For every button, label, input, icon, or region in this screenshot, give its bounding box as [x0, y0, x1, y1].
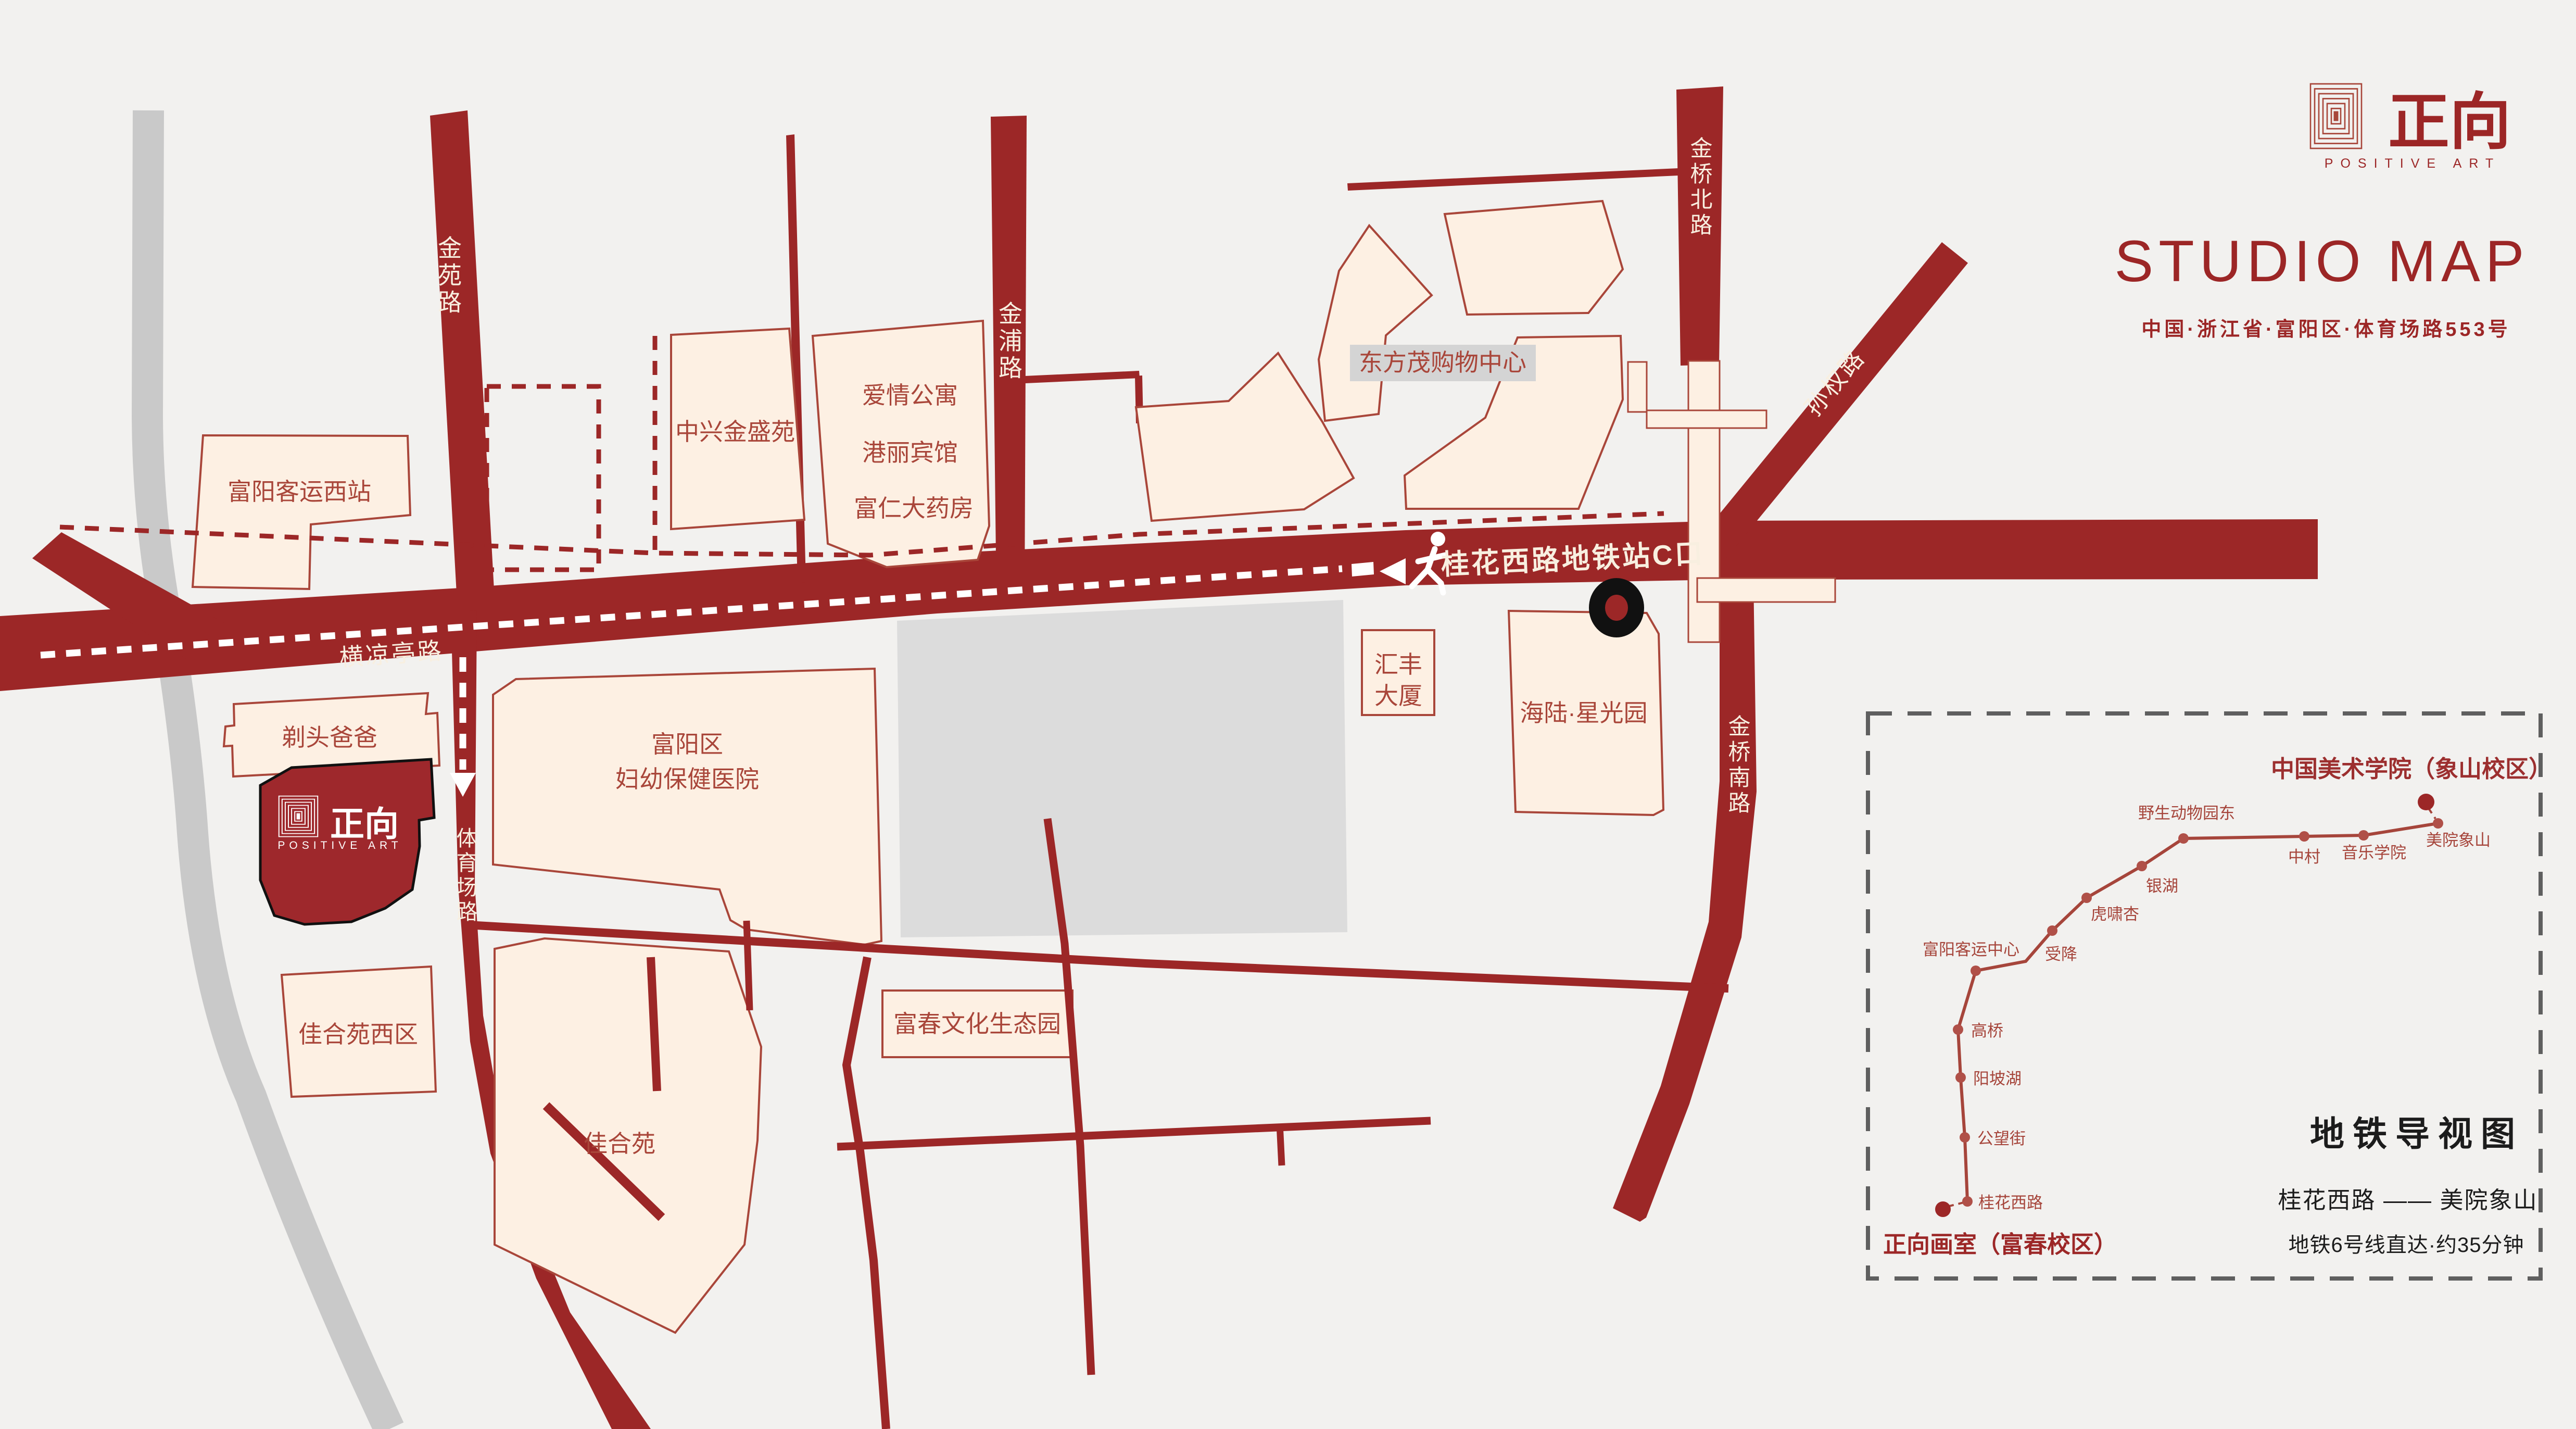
walking-route-arrow-dash: [1352, 562, 1374, 576]
station-label-shouxiang: 受降: [2045, 945, 2077, 963]
metro-station-dot: [2433, 818, 2443, 829]
label-bus-station-west: 富阳客运西站: [228, 478, 371, 505]
station-label-meiyuanxiangshan: 美院象山: [2426, 831, 2491, 849]
brand-logo-mark: [2310, 84, 2362, 148]
station-label-zhongcun: 中村: [2288, 848, 2320, 866]
brand-address: 中国·浙江省·富阳区·体育场路553号: [2141, 318, 2510, 341]
station-label-gaoqiao: 高桥: [1971, 1022, 2003, 1040]
metro-exit-marker-inner: [1605, 595, 1628, 621]
label-hailu: 海陆·星光园: [1520, 699, 1647, 726]
station-structure-notch: [1628, 362, 1647, 412]
studio-map-poster: 金苑路 金浦路 金桥北路 金桥南路 体育场路 孙权路 横凉亭路 桂花西路地铁站C…: [0, 0, 2576, 1429]
brand-logo-latin: POSITIVE ART: [2325, 156, 2501, 171]
building-dongfangmao-3: [1445, 201, 1623, 315]
station-label-gongwangjie: 公望街: [1977, 1130, 2026, 1148]
road-label-tiyuchang: 体育场路: [453, 827, 477, 925]
road-label-jinpu: 金浦路: [995, 301, 1022, 382]
station-label-yeshengdongwuyuandong: 野生动物园东: [2138, 804, 2235, 822]
metro-station-dot: [2299, 831, 2309, 842]
label-jiaheyuan-west: 佳合苑西区: [298, 1021, 418, 1048]
label-hospital-1: 富阳区: [651, 731, 723, 758]
label-jiaheyuan: 佳合苑: [584, 1130, 655, 1157]
label-huifeng-1: 汇丰: [1374, 651, 1422, 678]
metro-terminal-dot-start: [1935, 1201, 1951, 1217]
metro-station-dot: [2047, 925, 2057, 936]
studio-logo-mark: [279, 796, 318, 837]
road-label-jinyuan: 金苑路: [435, 235, 462, 317]
station-label-huxiaoxing: 虎啸杏: [2091, 905, 2139, 923]
metro-station-dot: [1953, 1024, 1963, 1035]
road-hospital-stub: [747, 921, 750, 1010]
station-structure-upper-bar: [1647, 410, 1766, 428]
label-tenant-3: 富仁大药房: [854, 495, 974, 522]
inset-end-label: 中国美术学院（象山校区）: [2271, 756, 2552, 782]
studio-logo-hanzi: 正向: [330, 804, 399, 844]
label-hospital-2: 妇幼保健医院: [615, 766, 759, 793]
label-tenant-1: 爱情公寓: [862, 382, 958, 409]
gray-block: [897, 600, 1347, 937]
label-zhongxing: 中兴金盛苑: [675, 418, 795, 445]
inset-start-label: 正向画室（富春校区）: [1883, 1231, 2117, 1258]
road-label-jinqiao-north: 金桥北路: [1687, 136, 1712, 239]
studio-logo-latin: POSITIVE ART: [277, 839, 402, 851]
inset-route: 桂花西路 —— 美院象山: [2278, 1187, 2537, 1213]
station-label-keyunzhongxin: 富阳客运中心: [1923, 941, 2019, 959]
metro-station-dot: [2358, 830, 2369, 841]
label-huifeng-2: 大厦: [1374, 682, 1422, 709]
label-titou: 剃头爸爸: [282, 724, 377, 751]
metro-terminal-dot-end: [2418, 794, 2434, 810]
station-label-yangpohu: 阳坡湖: [1973, 1070, 2022, 1088]
road-label-jinqiao-south: 金桥南路: [1725, 714, 1750, 817]
station-label-yinhu: 银湖: [2146, 877, 2178, 895]
metro-station-dot: [2178, 833, 2189, 844]
metro-station-dot: [2137, 861, 2147, 871]
brand-logo-hanzi: 正向: [2388, 85, 2511, 158]
page-title: STUDIO MAP: [2115, 229, 2530, 294]
metro-station-dot: [2081, 893, 2092, 903]
inset-title: 地铁导视图: [2310, 1114, 2523, 1153]
label-dongfangmao: 东方茂购物中心: [1359, 349, 1526, 376]
metro-station-dot: [1960, 1132, 1970, 1143]
road-south-lower-stub: [1280, 1124, 1282, 1165]
metro-station-dot: [1962, 1196, 1973, 1207]
label-tenant-2: 港丽宾馆: [862, 439, 958, 466]
station-label-guihuaxilu: 桂花西路: [1978, 1194, 2043, 1212]
inset-duration: 地铁6号线直达·约35分钟: [2288, 1234, 2524, 1257]
metro-station-dot: [1955, 1072, 1966, 1083]
label-fuchun-park: 富春文化生态园: [893, 1010, 1061, 1037]
metro-station-dot: [1971, 966, 1981, 976]
station-label-yinyuexueyuan: 音乐学院: [2342, 844, 2406, 862]
station-structure-lower-bar: [1697, 578, 1835, 602]
